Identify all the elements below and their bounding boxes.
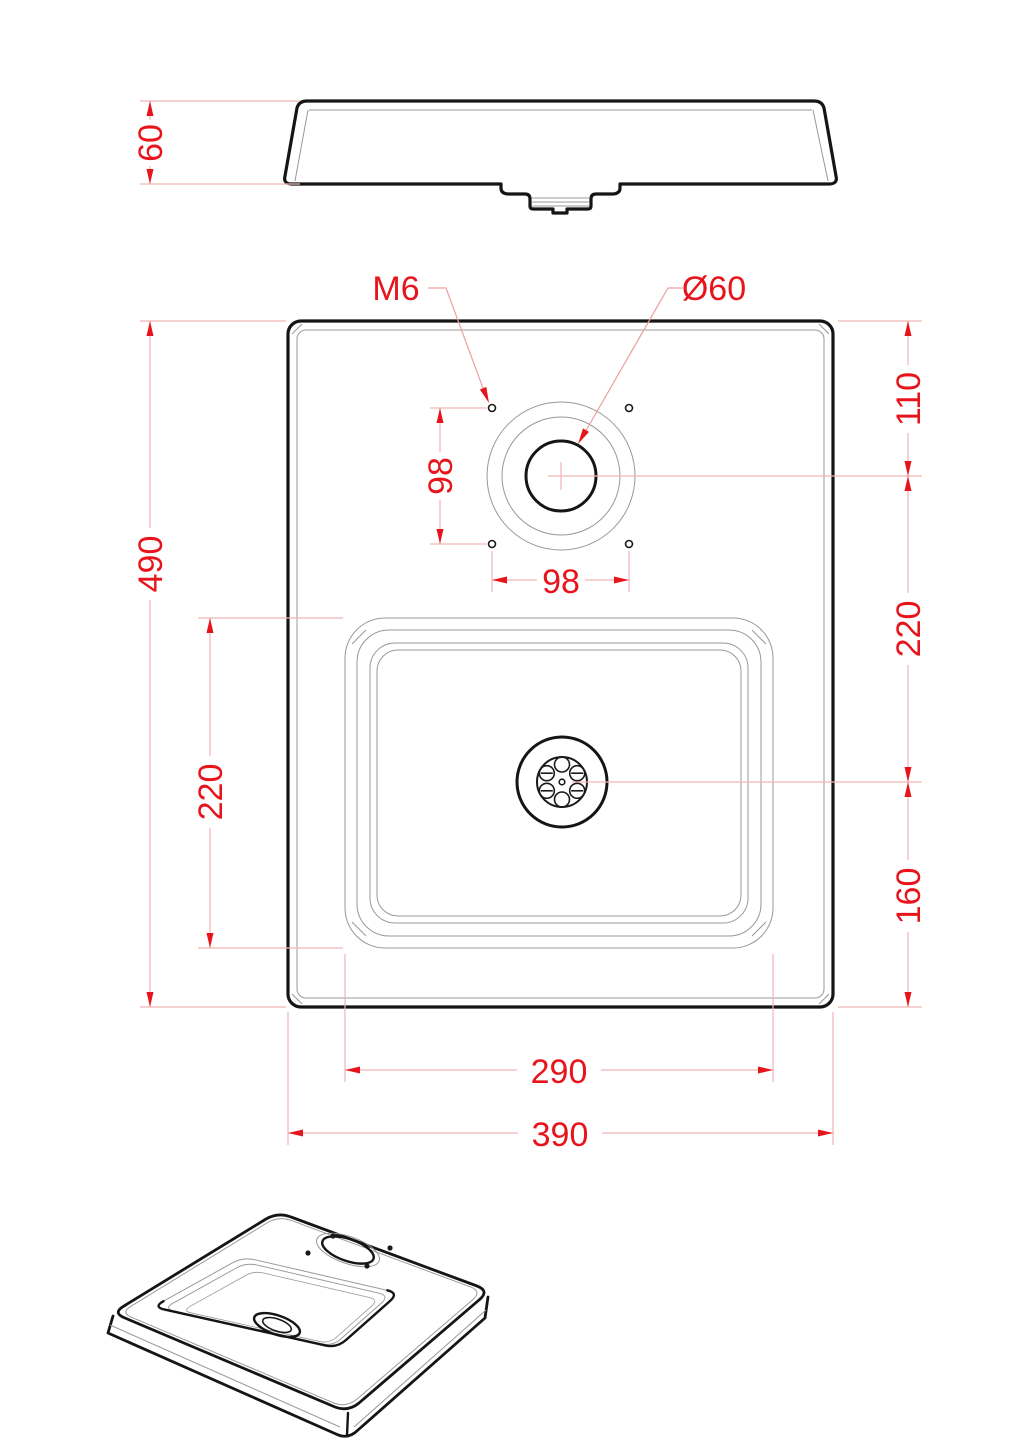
side-view-drain-threads — [532, 198, 589, 206]
thread-leader-line — [428, 288, 487, 399]
thread-label-text: M6 — [372, 270, 419, 308]
arrow-up — [147, 101, 154, 116]
dim-top-to-faucet: 110 — [838, 321, 928, 476]
dim-basin-width-text: 290 — [531, 1053, 588, 1091]
dim-drain-to-bottom: 160 — [838, 782, 928, 1007]
side-view — [285, 101, 837, 213]
plan-outer-outline — [288, 321, 833, 1007]
drain-screw-bottom — [555, 792, 570, 807]
faucet-diameter-leader-arrow — [578, 428, 589, 444]
faucet-diameter-leader-line — [580, 288, 684, 441]
iso-drain — [251, 1308, 303, 1342]
iso-faucet-inner-ellipse — [319, 1231, 377, 1269]
mount-hole-bottom-right — [626, 541, 633, 548]
plan-view — [288, 321, 833, 1007]
label-faucet-diameter: Ø60 — [578, 270, 746, 444]
dim-side-height: 60 — [132, 101, 300, 184]
iso-faucet-outer-ellipse — [312, 1226, 383, 1273]
side-view-left-chamfer — [295, 110, 308, 181]
iso-mount-hole-4 — [305, 1250, 310, 1255]
plan-corner-chamfers — [292, 324, 829, 1004]
dim-faucet-to-drain-text: 220 — [890, 601, 928, 658]
drain — [517, 737, 922, 827]
iso-mount-hole-3 — [364, 1263, 369, 1268]
plan-inner-outline — [297, 330, 824, 998]
dim-basin-height-text: 220 — [192, 764, 230, 821]
iso-view — [108, 1215, 488, 1436]
mount-hole-top-left — [489, 405, 496, 412]
dim-basin-width: 290 — [345, 954, 773, 1091]
dim-hole-spacing-h-text: 98 — [542, 563, 580, 601]
iso-drain-outer-ellipse — [251, 1308, 303, 1342]
iso-right-face-chamfer — [354, 1310, 486, 1427]
dim-overall-height-text: 490 — [132, 536, 170, 593]
iso-front-corner-edge — [347, 1413, 348, 1435]
faucet-hole-group — [487, 402, 922, 550]
dim-hole-spacing-horizontal: 98 — [492, 551, 629, 601]
faucet-diameter-text: Ø60 — [682, 270, 746, 308]
side-view-outline — [285, 101, 837, 213]
dim-top-to-faucet-text: 110 — [890, 372, 928, 426]
mount-hole-top-right — [626, 405, 633, 412]
thread-leader-arrow — [480, 387, 489, 403]
dim-overall-width-text: 390 — [532, 1116, 589, 1154]
dim-side-height-text: 60 — [132, 124, 170, 162]
iso-basin-rim-outer — [159, 1259, 394, 1346]
dim-hole-spacing-vertical: 98 — [422, 408, 486, 544]
dim-faucet-to-drain: 220 — [890, 476, 928, 782]
technical-drawing-canvas: 60 — [0, 0, 1024, 1448]
arrow-down — [147, 169, 154, 184]
label-thread: M6 — [372, 270, 489, 403]
drain-center-hole — [559, 779, 565, 785]
iso-mount-hole-1 — [330, 1233, 335, 1238]
dim-hole-spacing-v-text: 98 — [422, 457, 460, 495]
iso-slab-silhouette — [108, 1297, 488, 1436]
dim-overall-height: 490 — [132, 321, 286, 1007]
mount-hole-bottom-left — [489, 541, 496, 548]
drawing-sheet: 60 — [0, 0, 1024, 1448]
iso-mount-hole-2 — [387, 1245, 392, 1250]
drain-screw-top — [555, 757, 570, 772]
dim-drain-to-bottom-text: 160 — [890, 868, 928, 925]
dim-basin-height: 220 — [192, 618, 343, 948]
